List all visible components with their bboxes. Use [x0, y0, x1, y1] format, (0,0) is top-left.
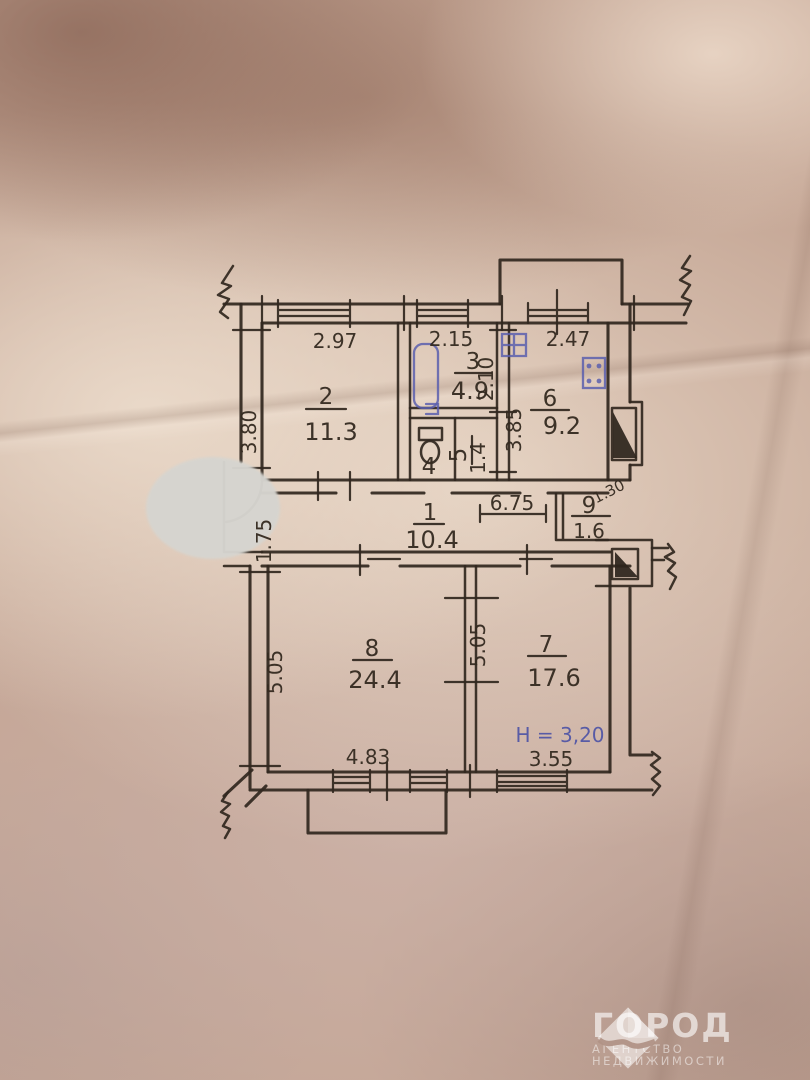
dim-corridor: 6.75	[490, 491, 535, 515]
wall-break-bottom-left	[221, 792, 230, 838]
dim-room7-width: 3.55	[529, 747, 574, 771]
room8-area: 24.4	[348, 666, 401, 694]
stove-icon	[583, 358, 605, 388]
room6-number: 6	[543, 386, 558, 412]
dim-room3-width: 2.15	[429, 327, 474, 351]
ceiling-height-note: Н = 3,20	[515, 723, 604, 747]
bathroom-fixtures	[414, 344, 442, 463]
sink-icon	[502, 334, 526, 356]
room6-area: 9.2	[543, 412, 581, 440]
ticks-top-wall	[262, 296, 634, 330]
room4-number: 4	[422, 454, 437, 480]
wall-break-top-left	[218, 266, 233, 318]
ticks-corridor-top	[318, 472, 350, 500]
wall-break-top-right	[680, 256, 691, 315]
room9-area: 1.6	[573, 519, 605, 543]
room7-area: 17.6	[527, 664, 580, 692]
dim-hall-left: 1.75	[252, 519, 276, 564]
corner-bottom-left	[224, 770, 266, 806]
room8-number: 8	[365, 636, 380, 662]
room1-number: 1	[423, 500, 438, 526]
balcony-bottom	[308, 790, 446, 833]
stove-burner	[587, 364, 592, 369]
room2-area: 11.3	[304, 418, 357, 446]
dim-room2-width: 2.97	[313, 329, 358, 353]
room7-number: 7	[539, 632, 554, 658]
room1-area: 10.4	[405, 526, 458, 554]
dim-room6-width: 2.47	[546, 327, 591, 351]
wall-bath-bottom	[410, 408, 497, 418]
wall-right-lower	[610, 566, 652, 772]
dim-room2-depth: 3.80	[237, 410, 261, 455]
agency-logo-icon	[592, 1002, 664, 1074]
stove-burner	[597, 379, 602, 384]
plan-labels: 2.97 3.80 2 11.3 2.15 3 4.9 2.10 2.47 6 …	[237, 327, 628, 771]
wall-break-right-mid	[665, 544, 676, 589]
toilet-icon	[419, 428, 442, 440]
room5-area: 1.4	[466, 442, 490, 474]
vent-shaft-kitchen-triangle	[613, 412, 637, 458]
dim-room3-depth: 2.10	[474, 357, 498, 402]
balcony-top	[500, 260, 622, 304]
agency-watermark: ГОРОД АГЕНТСТВО НЕДВИЖИМОСТИ	[592, 1002, 804, 1074]
dim-room8-width: 4.83	[346, 745, 391, 769]
room2-number: 2	[319, 384, 334, 410]
balcony-door-bottom	[387, 763, 447, 800]
dim-room8-depth: 5.05	[263, 650, 287, 695]
dim-room6-depth: 3.85	[502, 408, 526, 453]
floor-plan-photo: 2.97 3.80 2 11.3 2.15 3 4.9 2.10 2.47 6 …	[0, 0, 810, 1080]
bathtub-icon	[414, 344, 438, 408]
wall-room2-right	[398, 323, 410, 480]
floor-plan-drawing: 2.97 3.80 2 11.3 2.15 3 4.9 2.10 2.47 6 …	[0, 0, 810, 1080]
dim-partition: 5.05	[466, 623, 490, 668]
stove-burner	[597, 364, 602, 369]
logo-diamond-facet	[628, 1007, 659, 1038]
stove-burner	[587, 379, 592, 384]
vent-shaft-hall-triangle	[615, 552, 638, 577]
corridor-bottom-wall	[262, 552, 630, 566]
